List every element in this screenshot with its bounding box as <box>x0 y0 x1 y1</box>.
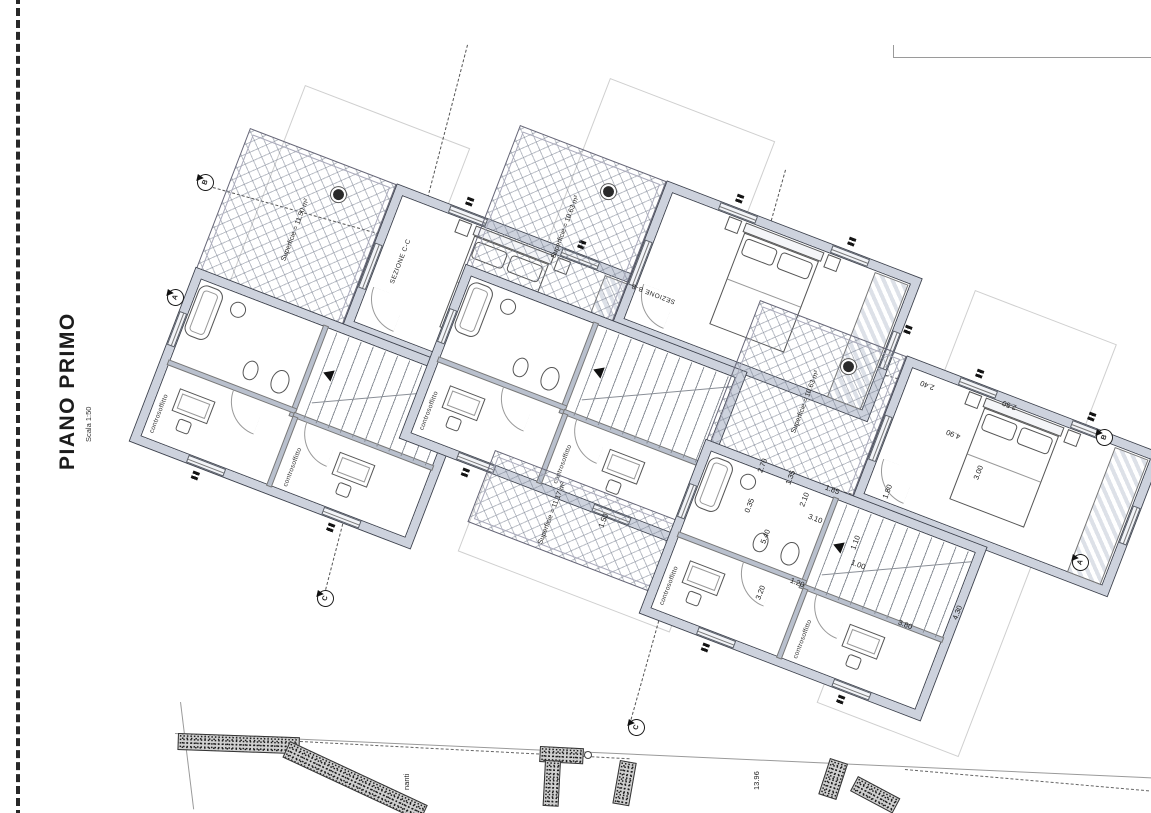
sink <box>498 296 519 317</box>
site-wall-fragment <box>177 733 300 754</box>
stairs-direction-arrow <box>825 537 844 554</box>
title-block-corner-horizontal <box>893 57 1151 58</box>
drawing-sheet: PIANO PRIMO Scala 1:50 Superficie = 11.5… <box>0 0 1151 813</box>
window-tag <box>190 471 200 483</box>
plan-scale: Scala 1:50 <box>84 407 93 442</box>
ceiling-label: controsoffitto <box>792 619 813 660</box>
survey-point-icon <box>584 751 592 759</box>
bidet <box>240 358 261 382</box>
chair <box>335 481 353 498</box>
bidet <box>510 355 531 379</box>
stairs-direction-arrow <box>585 362 604 379</box>
chair <box>175 418 193 435</box>
toilet <box>267 367 292 396</box>
drain-icon <box>331 188 345 202</box>
site-wall-fragment <box>850 776 900 813</box>
scan-edge-artifact <box>16 0 20 813</box>
window-tag <box>464 197 474 209</box>
bathtub <box>182 283 226 343</box>
door-arc <box>871 459 916 504</box>
terrace-1-label: Superficie = 11.50 m² <box>280 197 310 261</box>
bathtub <box>692 455 736 515</box>
terrace-4-label: Superficie = 10.63 m² <box>790 369 820 434</box>
section-marker-c: C <box>315 588 337 610</box>
plan-title: PIANO PRIMO <box>56 312 80 470</box>
window-tag <box>903 325 913 337</box>
door-arc <box>361 287 406 332</box>
terrace-3-label: Superficie = 11.17 m² <box>537 481 567 545</box>
site-wall-fragment <box>543 760 561 807</box>
sink <box>738 471 759 492</box>
bedside-table <box>964 391 982 409</box>
bedside-table <box>823 254 841 272</box>
site-outline-line <box>180 702 194 809</box>
bathtub <box>452 280 496 340</box>
ceiling-label: controsoffitto <box>658 565 679 606</box>
ceiling-label: controsoffitto <box>282 447 303 488</box>
drain-icon <box>601 185 615 199</box>
stairs-rail-line <box>582 386 732 400</box>
toilet <box>777 539 802 568</box>
ceiling-label: controsoffitto <box>418 390 439 431</box>
bedside-table <box>724 216 742 234</box>
window-tag <box>846 237 856 249</box>
chair <box>845 653 863 670</box>
window-tag <box>700 643 710 655</box>
site-text: nanti <box>402 774 411 790</box>
site-wall-fragment <box>818 758 848 800</box>
section-marker-c: C <box>626 717 648 739</box>
bedside-table <box>1063 429 1081 447</box>
site-dim: 13.96 <box>752 771 761 790</box>
chair <box>685 590 703 607</box>
drain-icon <box>841 360 855 374</box>
stairs-direction-arrow <box>315 365 334 382</box>
site-wall-fragment <box>612 760 636 806</box>
section-marker-b: B <box>195 172 217 194</box>
terrace-2-label: Superficie = 10.63 m² <box>550 194 580 259</box>
window-tag <box>325 522 335 534</box>
sink <box>228 299 249 320</box>
stairs-rail-line <box>822 561 972 575</box>
chair <box>445 415 463 432</box>
ceiling-label: controsoffitto <box>148 393 169 434</box>
bedside-table <box>454 219 472 237</box>
toilet <box>537 364 562 393</box>
